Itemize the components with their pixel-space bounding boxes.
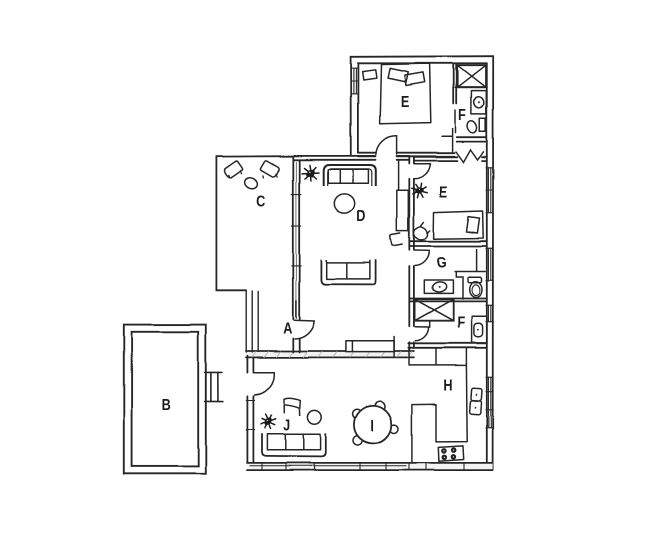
svg-text:E: E — [439, 185, 447, 202]
svg-text:I: I — [371, 418, 375, 435]
svg-text:D: D — [357, 208, 366, 225]
svg-text:H: H — [443, 377, 452, 394]
svg-text:B: B — [162, 397, 171, 414]
svg-text:E: E — [401, 94, 409, 111]
svg-text:F: F — [459, 107, 467, 124]
svg-text:J: J — [284, 417, 291, 434]
svg-text:G: G — [436, 255, 446, 272]
svg-text:C: C — [256, 194, 265, 211]
svg-text:A: A — [283, 320, 292, 337]
svg-text:F: F — [457, 315, 465, 332]
